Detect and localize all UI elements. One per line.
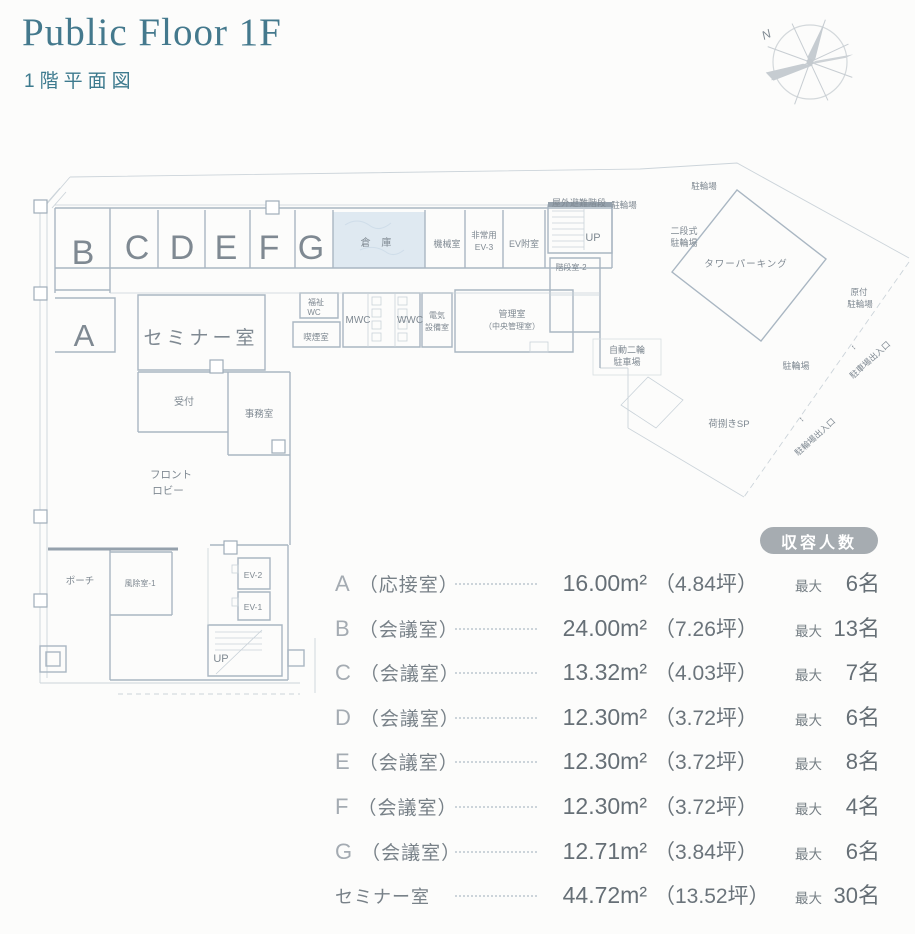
row-capacity: 30名: [822, 878, 880, 910]
bicycle-parking-label-3: 駐輪場: [782, 360, 809, 371]
table-row: A（応接室） 16.00m² （4.84坪） 最大 6名: [335, 566, 880, 611]
stair-room-2-label: 階段室-2: [555, 262, 587, 272]
loading-sp-label: 荷捌きSP: [708, 418, 749, 430]
entrance-arrow-1: ↕: [849, 342, 858, 351]
front-lobby-label-1: フロント: [150, 469, 192, 481]
row-name: （会議室）: [357, 798, 457, 819]
row-tsubo: （3.72坪）: [647, 746, 782, 776]
front-lobby-label-2: ロビー: [152, 485, 184, 497]
row-letter: B: [335, 616, 350, 641]
row-max-label: 最大: [782, 664, 822, 684]
motorcycle-parking-label-1: 自動二輪: [609, 344, 645, 355]
tower-parking-label: タワーパーキング: [704, 258, 788, 270]
row-tsubo: （4.84坪）: [647, 568, 782, 598]
seminar-room-label: セミナー室: [143, 327, 258, 349]
row-letter: A: [335, 571, 350, 596]
row-letter: D: [335, 705, 351, 730]
room-label-a: A: [74, 318, 95, 353]
machine-room-label: 機械室: [433, 238, 460, 249]
row-area: 24.00m²: [547, 615, 647, 642]
capacity-badge: 収容人数: [760, 527, 878, 554]
porch-label: ポーチ: [66, 576, 95, 587]
room-label-b: B: [72, 234, 95, 272]
office-label: 事務室: [245, 408, 274, 420]
row-tsubo: （3.84坪）: [647, 836, 782, 866]
row-name: （会議室）: [361, 843, 461, 864]
emergency-ev-label-1: 非常用: [471, 230, 497, 240]
dotted-leader: [455, 628, 537, 630]
dotted-leader: [455, 895, 537, 897]
mens-wc-label: MWC: [346, 315, 371, 326]
table-row: B（会議室） 24.00m² （7.26坪） 最大 13名: [335, 611, 880, 656]
row-area: 13.32m²: [547, 659, 647, 686]
womens-wc-label: WWC: [397, 315, 423, 326]
row-max-label: 最大: [782, 709, 822, 729]
row-letter: E: [335, 749, 350, 774]
ev-vestibule-label: EV附室: [509, 238, 539, 249]
bicycle-entrance-label: 駐輪場出入口: [793, 416, 838, 458]
row-max-label: 最大: [782, 575, 822, 595]
row-area: 12.30m²: [547, 793, 647, 820]
up-stairs-bottom-label: UP: [213, 653, 228, 665]
row-capacity: 7名: [822, 655, 880, 687]
moped-parking-label-2: 駐輪場: [847, 299, 873, 309]
bicycle-parking-label-1: 駐輪場: [611, 200, 637, 210]
windbreak-room-label: 風除室-1: [124, 578, 156, 588]
row-letter: C: [335, 660, 351, 685]
dotted-leader: [455, 761, 537, 763]
welfare-wc-label-1: 福祉: [308, 297, 324, 307]
storage-label: 倉 庫: [361, 236, 396, 249]
row-capacity: 13名: [822, 611, 880, 643]
row-tsubo: （3.72坪）: [647, 702, 782, 732]
row-area: 16.00m²: [547, 570, 647, 597]
smoking-room-label: 喫煙室: [303, 332, 329, 342]
dotted-leader: [455, 583, 537, 585]
row-max-label: 最大: [782, 843, 822, 863]
row-capacity: 6名: [822, 834, 880, 866]
ev1-label: EV-1: [244, 602, 263, 612]
row-name: （応接室）: [359, 575, 459, 596]
row-name: （会議室）: [360, 709, 460, 730]
row-capacity: 6名: [822, 700, 880, 732]
row-tsubo: （4.03坪）: [647, 657, 782, 687]
row-area: 12.30m²: [547, 748, 647, 775]
row-letter: セミナー室: [335, 887, 430, 907]
two-tier-parking-label-1: 二段式: [670, 225, 697, 236]
room-label-e: E: [215, 229, 238, 267]
table-row: G（会議室） 12.71m² （3.84坪） 最大 6名: [335, 834, 880, 879]
room-legend-table: A（応接室） 16.00m² （4.84坪） 最大 6名 B（会議室） 24.0…: [335, 566, 880, 923]
row-name: （会議室）: [360, 664, 460, 685]
row-letter: F: [335, 794, 348, 819]
row-tsubo: （7.26坪）: [647, 613, 782, 643]
room-label-d: D: [170, 229, 195, 267]
motorcycle-parking-label-2: 駐車場: [613, 356, 640, 367]
dotted-leader: [455, 717, 537, 719]
row-max-label: 最大: [782, 753, 822, 773]
row-letter: G: [335, 839, 352, 864]
row-name: （会議室）: [359, 620, 459, 641]
row-max-label: 最大: [782, 798, 822, 818]
ev2-label: EV-2: [244, 570, 263, 580]
moped-parking-label-1: 原付: [850, 287, 868, 297]
reception-label: 受付: [174, 395, 194, 408]
entrance-arrow-2: ↕: [797, 414, 806, 423]
welfare-wc-label-2: WC: [307, 308, 321, 317]
outdoor-stairs-label: 屋外避難階段: [552, 197, 606, 208]
dotted-leader: [455, 806, 537, 808]
table-row: D（会議室） 12.30m² （3.72坪） 最大 6名: [335, 700, 880, 745]
electrical-room-label-1: 電気: [429, 310, 445, 320]
bicycle-parking-label-2: 駐輪場: [691, 181, 717, 191]
control-room-label-1: 管理室: [498, 308, 525, 319]
room-label-g: G: [298, 229, 324, 267]
row-max-label: 最大: [782, 887, 822, 907]
row-capacity: 8名: [822, 744, 880, 776]
row-area: 12.71m²: [547, 838, 647, 865]
electrical-room-label-2: 設備室: [425, 322, 449, 332]
row-max-label: 最大: [782, 620, 822, 640]
row-tsubo: （13.52坪）: [647, 880, 782, 910]
dotted-leader: [455, 851, 537, 853]
row-capacity: 6名: [822, 566, 880, 598]
room-label-f: F: [259, 229, 280, 267]
up-stairs-top-label: UP: [585, 232, 600, 244]
control-room-label-2: （中央管理室）: [484, 321, 540, 331]
row-name: （会議室）: [359, 753, 459, 774]
room-label-c: C: [125, 229, 150, 267]
two-tier-parking-label-2: 駐輪場: [670, 237, 697, 248]
table-row: E（会議室） 12.30m² （3.72坪） 最大 8名: [335, 744, 880, 789]
table-row: セミナー室 44.72m² （13.52坪） 最大 30名: [335, 878, 880, 923]
table-row: C（会議室） 13.32m² （4.03坪） 最大 7名: [335, 655, 880, 700]
brochure-page: Public Floor 1F 1階平面図 N: [0, 0, 915, 934]
car-park-entrance-label: 駐車場出入口: [848, 339, 893, 381]
table-row: F（会議室） 12.30m² （3.72坪） 最大 4名: [335, 789, 880, 834]
emergency-ev-label-2: EV-3: [475, 242, 494, 252]
row-area: 12.30m²: [547, 704, 647, 731]
dotted-leader: [455, 672, 537, 674]
row-tsubo: （3.72坪）: [647, 791, 782, 821]
row-capacity: 4名: [822, 789, 880, 821]
row-area: 44.72m²: [547, 882, 647, 909]
